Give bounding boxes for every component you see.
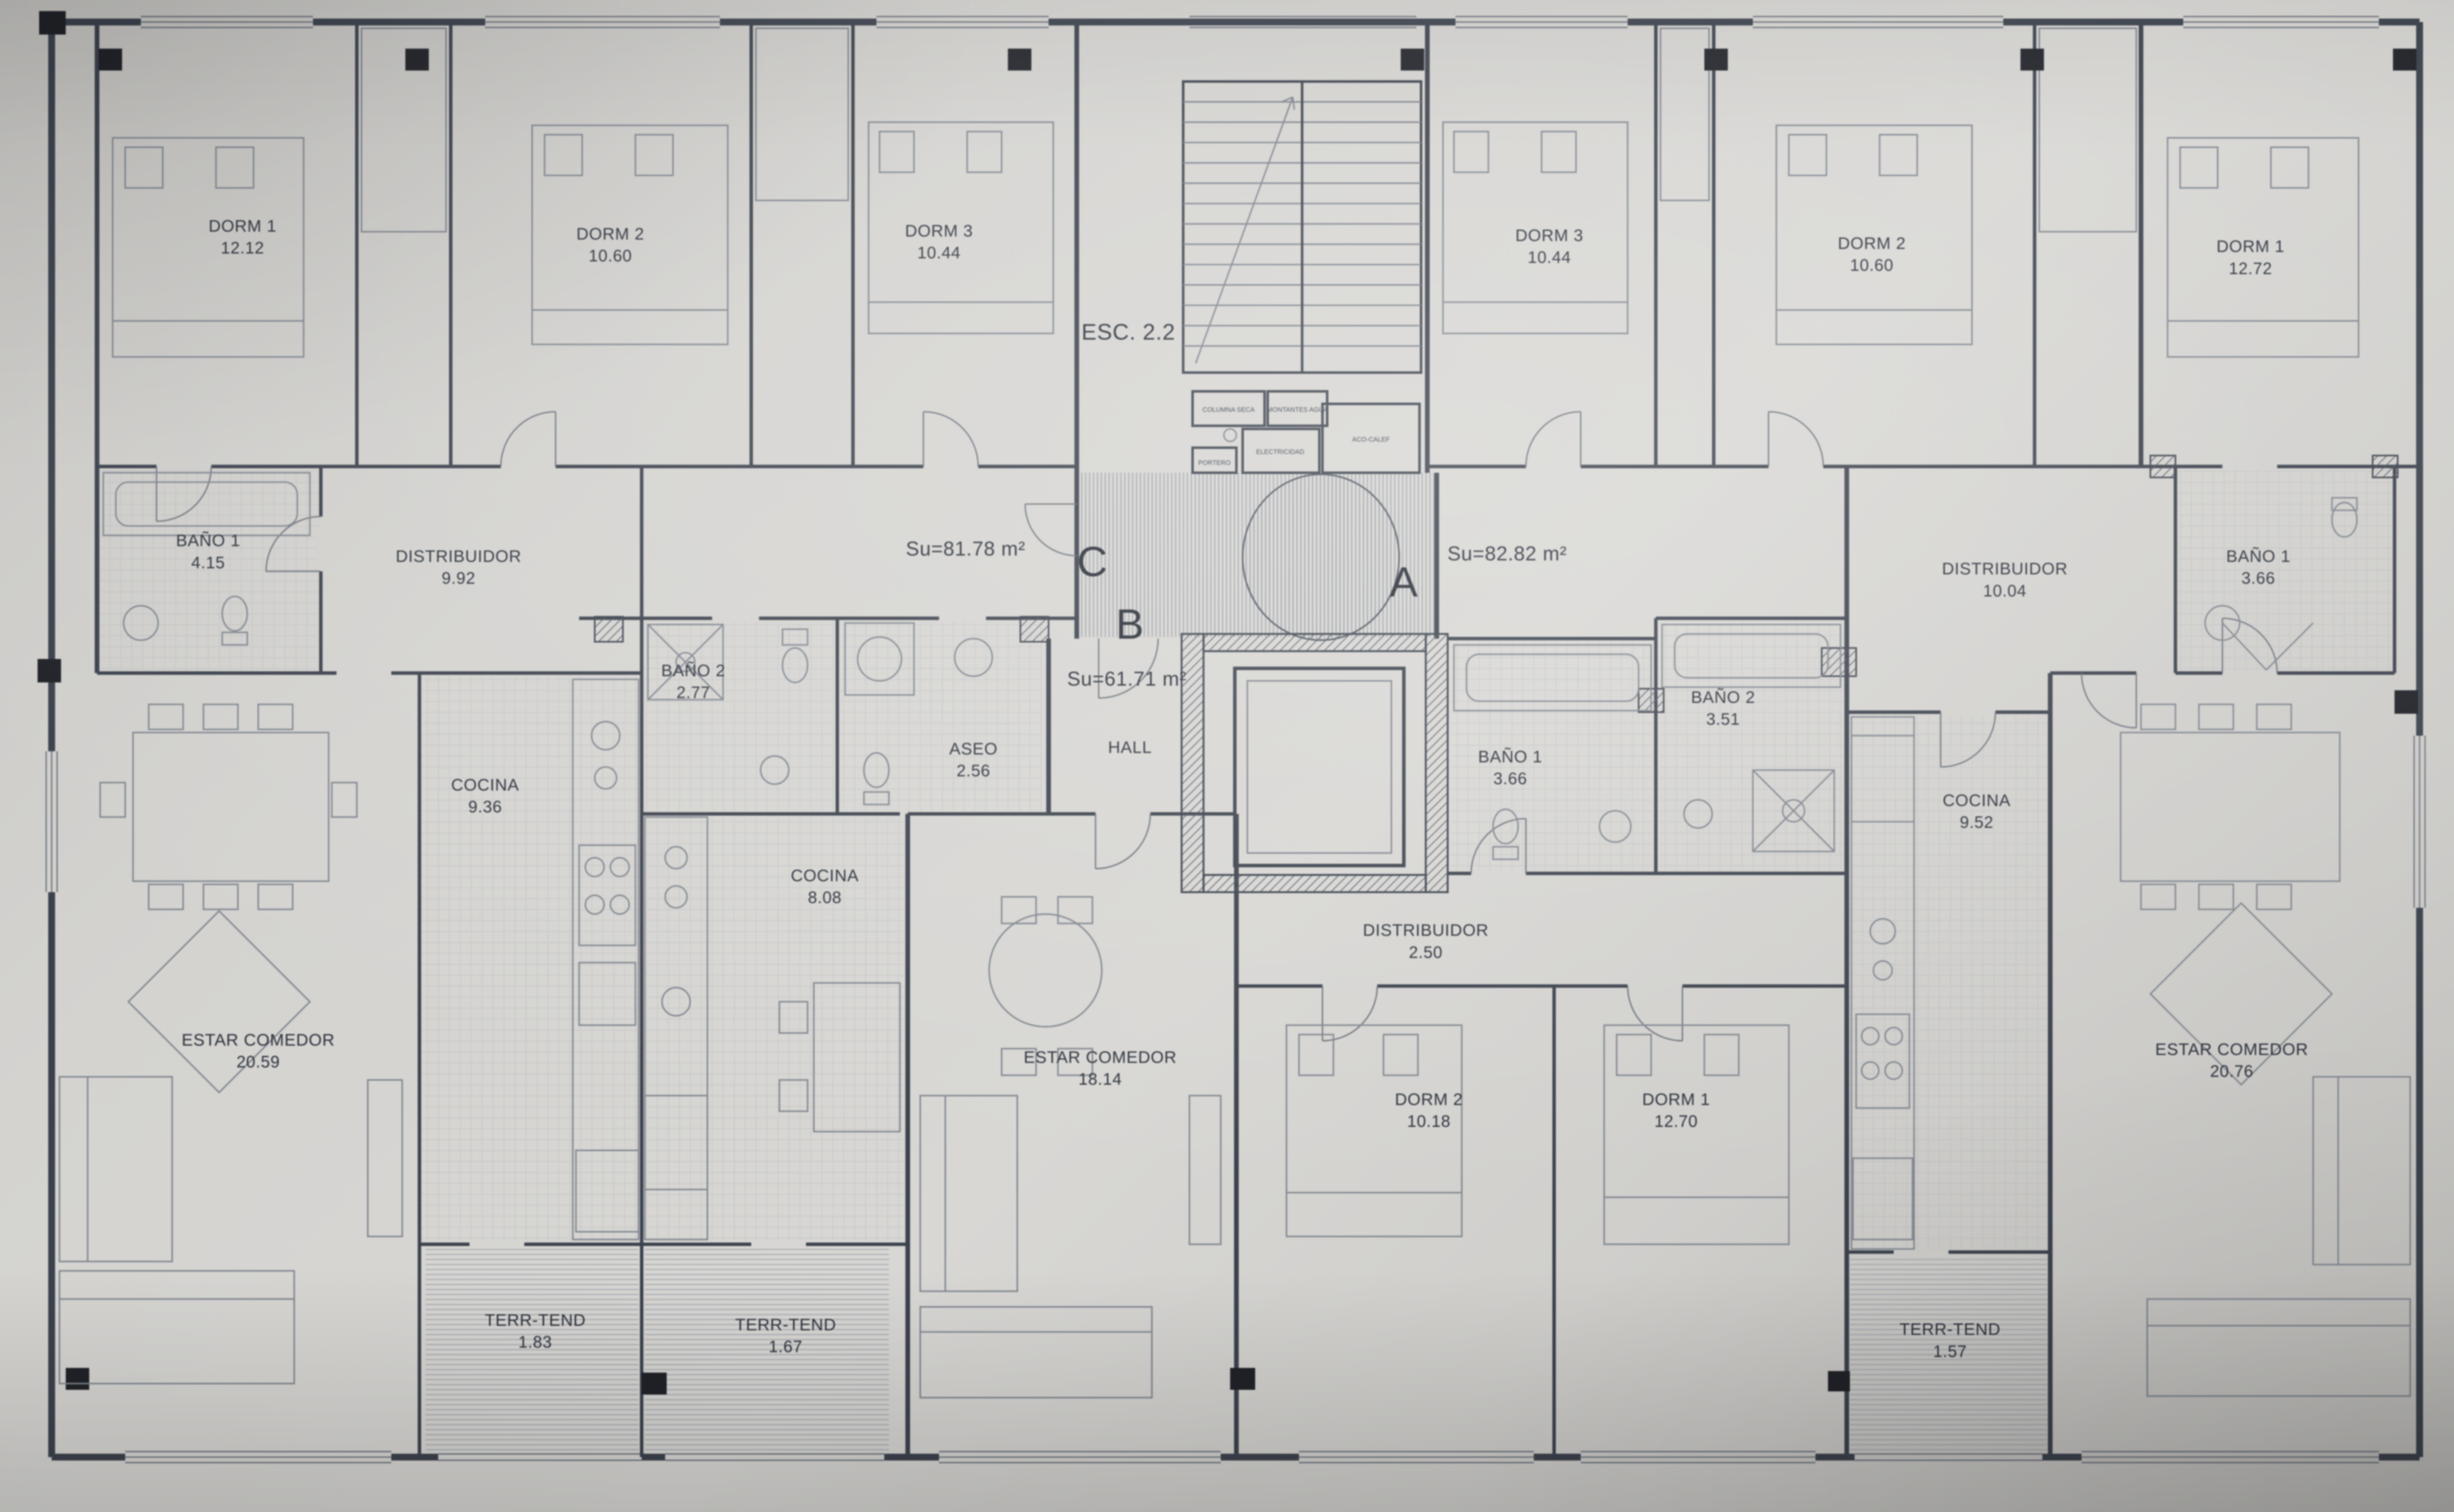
closet-label-electricidad: ELECTRICIDAD — [1256, 448, 1305, 455]
svg-text:1.67: 1.67 — [768, 1337, 802, 1356]
tv-unit — [1189, 1095, 1221, 1244]
closet-label-columna-seca: COLUMNA SECA — [1203, 406, 1256, 414]
svg-text:10.18: 10.18 — [1407, 1112, 1451, 1131]
lightwell-circle — [1243, 474, 1399, 640]
svg-text:TERR-TEND: TERR-TEND — [735, 1315, 836, 1334]
sofa — [2147, 1299, 2410, 1396]
svg-text:BAÑO 2: BAÑO 2 — [1691, 688, 1755, 707]
svg-text:TERR-TEND: TERR-TEND — [485, 1311, 586, 1329]
room-label-distribuidor-left: DISTRIBUIDOR9.92 — [395, 547, 521, 588]
svg-text:DORM 2: DORM 2 — [576, 224, 644, 243]
room-label-dorm1-left: DORM 112.12 — [209, 217, 277, 257]
svg-text:BAÑO 1: BAÑO 1 — [176, 531, 240, 550]
svg-text:ESTAR COMEDOR: ESTAR COMEDOR — [1024, 1047, 1177, 1066]
elevator-cab — [1235, 668, 1404, 865]
utility-closets: COLUMNA SECA MONTANTES AGUA ACO-CALEF EL… — [1192, 391, 1419, 472]
room-label-estar-right: ESTAR COMEDOR20.76 — [2155, 1040, 2308, 1080]
svg-text:9.92: 9.92 — [442, 569, 476, 588]
room-label-dorm1-bottom: DORM 112.70 — [1642, 1090, 1710, 1131]
rug-diamond — [129, 911, 310, 1092]
room-label-dorm2-left: DORM 210.60 — [576, 224, 644, 265]
sofa — [920, 1095, 1017, 1291]
svg-text:1.83: 1.83 — [519, 1332, 553, 1351]
svg-text:BAÑO 1: BAÑO 1 — [2226, 547, 2290, 566]
dining-table — [100, 704, 357, 909]
svg-text:DORM 3: DORM 3 — [905, 221, 973, 240]
wardrobes — [361, 29, 2136, 232]
svg-text:COCINA: COCINA — [1943, 791, 2011, 810]
svg-text:10.60: 10.60 — [1850, 256, 1894, 275]
svg-text:DORM 1: DORM 1 — [209, 217, 277, 235]
svg-text:12.70: 12.70 — [1655, 1112, 1698, 1131]
svg-text:10.04: 10.04 — [1983, 581, 2027, 600]
room-label-distribuidor-centre: DISTRIBUIDOR2.50 — [1363, 921, 1488, 961]
svg-text:DORM 2: DORM 2 — [1395, 1090, 1463, 1109]
stair-direction-arrow — [1195, 97, 1294, 363]
sofa — [920, 1307, 1152, 1398]
sofa — [2313, 1077, 2410, 1265]
sofa — [59, 1271, 294, 1383]
room-label-dorm3-right: DORM 310.44 — [1515, 226, 1583, 267]
svg-text:DORM 1: DORM 1 — [1642, 1090, 1710, 1109]
sofa — [59, 1077, 172, 1261]
svg-text:DISTRIBUIDOR: DISTRIBUIDOR — [1942, 559, 2068, 578]
apartment-b-area: Su=61.71 m² — [1067, 667, 1186, 690]
apartment-letter-b: B — [1115, 600, 1144, 648]
svg-text:DORM 3: DORM 3 — [1515, 226, 1583, 245]
svg-text:TERR-TEND: TERR-TEND — [1900, 1320, 2001, 1339]
svg-text:ESTAR COMEDOR: ESTAR COMEDOR — [2155, 1040, 2308, 1058]
svg-text:10.44: 10.44 — [1528, 248, 1572, 267]
room-label-dorm3-left: DORM 310.44 — [905, 221, 973, 262]
svg-text:2.56: 2.56 — [956, 761, 990, 780]
svg-text:BAÑO 2: BAÑO 2 — [661, 661, 725, 680]
svg-text:12.12: 12.12 — [221, 238, 264, 257]
closet-label-portero: PORTERO — [1198, 460, 1231, 467]
svg-text:1.57: 1.57 — [1933, 1342, 1967, 1360]
room-label-dorm2-bottom: DORM 210.18 — [1395, 1090, 1463, 1131]
svg-text:2.50: 2.50 — [1409, 942, 1443, 961]
svg-text:DORM 2: DORM 2 — [1838, 234, 1906, 252]
svg-text:ESTAR COMEDOR: ESTAR COMEDOR — [182, 1030, 335, 1049]
svg-text:9.52: 9.52 — [1960, 813, 1994, 832]
svg-text:COCINA: COCINA — [791, 866, 859, 885]
svg-text:BAÑO 1: BAÑO 1 — [1478, 747, 1542, 766]
room-label-dorm1-right: DORM 112.72 — [2216, 237, 2284, 278]
svg-text:3.66: 3.66 — [2242, 569, 2276, 588]
svg-text:ASEO: ASEO — [949, 739, 998, 758]
svg-text:20.59: 20.59 — [237, 1052, 280, 1071]
svg-text:10.44: 10.44 — [917, 243, 961, 262]
svg-text:2.77: 2.77 — [676, 683, 710, 702]
svg-text:12.72: 12.72 — [2229, 259, 2273, 278]
closet-label-montantes: MONTANTES AGUA — [1267, 406, 1328, 414]
svg-text:3.51: 3.51 — [1706, 710, 1740, 728]
bed — [113, 138, 304, 357]
closet-label-aco-calef: ACO-CALEF — [1352, 436, 1390, 443]
room-label-hall: HALL — [1108, 738, 1152, 756]
svg-text:10.60: 10.60 — [589, 246, 633, 265]
svg-text:18.14: 18.14 — [1078, 1069, 1122, 1088]
svg-text:4.15: 4.15 — [191, 553, 225, 572]
svg-text:20.76: 20.76 — [2210, 1061, 2254, 1080]
stair-label: ESC. 2.2 — [1081, 319, 1175, 344]
room-label-estar-centre: ESTAR COMEDOR18.14 — [1024, 1047, 1177, 1088]
svg-text:3.66: 3.66 — [1493, 769, 1527, 788]
svg-text:DISTRIBUIDOR: DISTRIBUIDOR — [1363, 921, 1488, 939]
bed — [1286, 1025, 1462, 1236]
elevator-shaft — [1182, 634, 1448, 892]
apartment-c-area: Su=81.78 m² — [906, 537, 1026, 560]
room-label-distribuidor-right: DISTRIBUIDOR10.04 — [1942, 559, 2068, 600]
apartment-letter-c: C — [1077, 538, 1108, 585]
svg-text:9.36: 9.36 — [468, 797, 502, 816]
room-label-dorm2-right: DORM 210.60 — [1838, 234, 1906, 274]
svg-text:8.08: 8.08 — [808, 888, 842, 907]
floor-plan-drawing: COLUMNA SECA MONTANTES AGUA ACO-CALEF EL… — [0, 0, 2454, 1512]
svg-text:DORM 1: DORM 1 — [2216, 237, 2284, 256]
bed — [1604, 1025, 1789, 1244]
dining-table — [2120, 704, 2339, 909]
tv-unit — [368, 1080, 402, 1237]
svg-text:DISTRIBUIDOR: DISTRIBUIDOR — [395, 547, 521, 566]
apartment-a-area: Su=82.82 m² — [1447, 542, 1567, 565]
apartment-letter-a: A — [1390, 558, 1418, 605]
staircase — [1183, 81, 1421, 372]
columns-black — [38, 11, 2418, 1394]
svg-text:COCINA: COCINA — [451, 775, 519, 794]
room-label-estar-left: ESTAR COMEDOR20.59 — [182, 1030, 335, 1071]
floor-plan-photo: COLUMNA SECA MONTANTES AGUA ACO-CALEF EL… — [0, 0, 2454, 1512]
